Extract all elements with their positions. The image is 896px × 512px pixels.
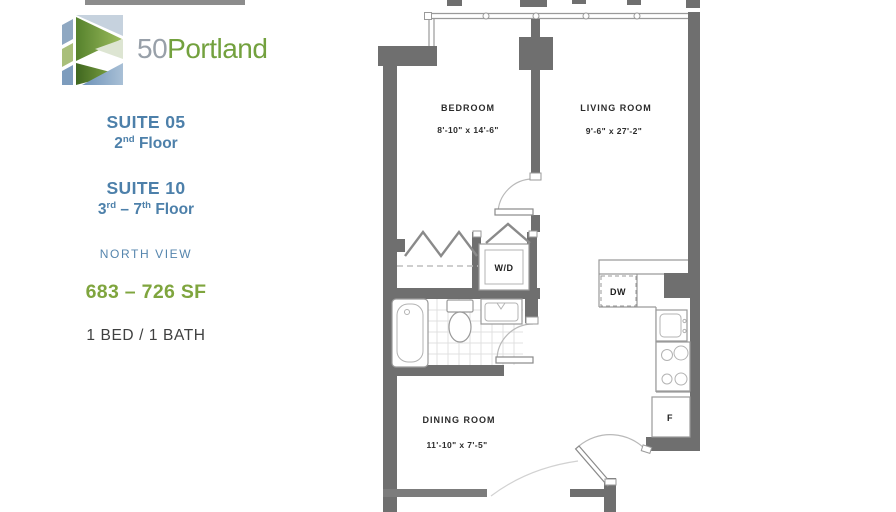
- bathtub: [392, 299, 428, 367]
- window-wall: [425, 13, 691, 48]
- area-range-label: 683 – 726 SF: [38, 281, 254, 304]
- brand-wordmark: 50Portland: [137, 35, 267, 63]
- closet-bifold-doors: [397, 232, 478, 266]
- fridge-label: F: [667, 413, 673, 423]
- hall-door-partial: [491, 461, 578, 496]
- dishwasher: DW: [601, 276, 636, 306]
- living-room-dims: 9'-6" x 27'-2": [586, 126, 642, 136]
- vanity-sink: [481, 299, 522, 324]
- brand-name: Portland: [167, 33, 267, 64]
- logo-left-strip: [62, 19, 73, 85]
- window-mullion: [583, 13, 589, 19]
- column: [519, 37, 553, 70]
- bedroom-dims: 8'-10" x 14'-6": [437, 125, 499, 135]
- window-mullion: [533, 13, 539, 19]
- suite-10-title: SUITE 10: [38, 178, 254, 199]
- window-mullion: [425, 13, 432, 20]
- window-mullion: [634, 13, 640, 19]
- bed-bath-label: 1 BED / 1 BATH: [38, 327, 254, 345]
- bedroom-door: [495, 173, 541, 215]
- washer-dryer-label: W/D: [495, 263, 514, 273]
- dining-room-dims: 11'-10" x 7'-5": [426, 440, 487, 450]
- top-crop-marks: [85, 0, 700, 8]
- suite-info-panel: SUITE 05 2nd Floor SUITE 10 3rd – 7th Fl…: [38, 112, 254, 345]
- brand-number: 50: [137, 33, 167, 64]
- floorplan-flyer-page: { "brand": { "number": "50", "name": "Po…: [0, 0, 896, 512]
- brand-logo-icon: [62, 13, 124, 85]
- dishwasher-label: DW: [610, 287, 626, 297]
- suite-10-floor: 3rd – 7th Floor: [38, 201, 254, 219]
- suite-05-floor: 2nd Floor: [38, 135, 254, 153]
- stove: [656, 342, 690, 391]
- bedroom-label: BEDROOM: [441, 103, 495, 113]
- living-room-label: LIVING ROOM: [580, 103, 652, 113]
- toilet: [447, 300, 473, 342]
- view-direction-label: NORTH VIEW: [38, 247, 254, 261]
- bathroom: [392, 299, 538, 367]
- dining-room-label: DINING ROOM: [423, 415, 496, 425]
- kitchen-sink: [656, 310, 687, 341]
- window-mullion: [483, 13, 489, 19]
- brand-header: 50Portland: [62, 11, 312, 87]
- suite-05-title: SUITE 05: [38, 112, 254, 133]
- logo-triangles: [76, 15, 123, 85]
- fridge: F: [652, 397, 690, 437]
